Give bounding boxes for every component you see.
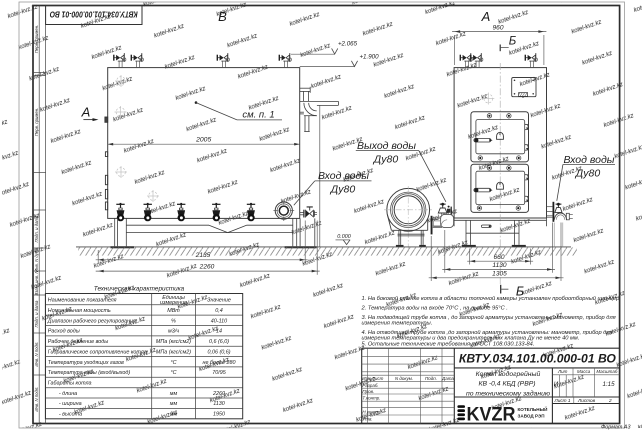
svg-text:Номинальная мощность: Номинальная мощность: [48, 308, 111, 314]
svg-text:Ду80: Ду80: [575, 167, 601, 179]
svg-text:мм: мм: [170, 401, 178, 407]
svg-text:1305: 1305: [492, 270, 507, 277]
svg-text:Температура воды (вход/выход): Температура воды (вход/выход): [48, 370, 131, 376]
svg-text:+2.065: +2.065: [338, 41, 358, 48]
svg-text:2260: 2260: [199, 264, 215, 271]
svg-text:Разраб.: Разраб.: [362, 383, 378, 388]
svg-text:Пров.: Пров.: [362, 389, 374, 394]
svg-text:Рабочее давление воды: Рабочее давление воды: [48, 339, 108, 345]
svg-text:Габариты котла: Габариты котла: [48, 381, 92, 387]
svg-text:Подп.: Подп.: [425, 376, 437, 381]
svg-text:Подп. и дата: Подп. и дата: [34, 300, 39, 328]
svg-text:Инв. N подл.: Инв. N подл.: [34, 341, 39, 366]
svg-text:N докум.: N докум.: [395, 376, 413, 381]
svg-text:И: И: [554, 381, 559, 388]
svg-text:Взам. инв. N: Взам. инв. N: [34, 270, 39, 296]
svg-text:мм: мм: [170, 412, 178, 418]
svg-text:КОТЕЛЬНЫЙ: КОТЕЛЬНЫЙ: [518, 405, 548, 412]
svg-text:Техническая характеристика: Техническая характеристика: [94, 286, 185, 293]
svg-text:2. Температура воды на входе: 2. Температура воды на входе 70°С , на в…: [361, 306, 508, 312]
svg-text:5. Остальные технические треб: 5. Остальные технические требования по О…: [362, 342, 535, 348]
svg-text:не более 280: не более 280: [203, 360, 236, 366]
svg-text:Инв. N подл.: Инв. N подл.: [34, 386, 39, 411]
svg-text:МВт: МВт: [167, 308, 180, 314]
svg-text:Подп. и дата: Подп. и дата: [34, 215, 39, 243]
svg-text:1. На боковой стенке котла в: 1. На боковой стенке котла в области топ…: [362, 295, 620, 302]
svg-text:Диапазон рабочего регулировани: Диапазон рабочего регулирования: [47, 318, 136, 324]
svg-text:Листов: Листов: [577, 398, 596, 403]
svg-text:1950: 1950: [213, 412, 225, 418]
svg-text:0,6 (6,0): 0,6 (6,0): [209, 339, 229, 345]
svg-text:Перв. примен.: Перв. примен.: [34, 108, 39, 137]
svg-text:Лит: Лит: [557, 369, 568, 374]
svg-text:см. п. 1: см. п. 1: [242, 109, 274, 120]
svg-text:Гидравлическое сопротивление к: Гидравлическое сопротивление котла: [48, 349, 147, 355]
svg-text:ЗАВОД РЭП: ЗАВОД РЭП: [518, 413, 545, 418]
svg-text:70/95: 70/95: [212, 370, 226, 376]
svg-text:Котел водогрейный: Котел водогрейный: [476, 370, 541, 378]
svg-text:960: 960: [492, 25, 503, 32]
svg-text:по техническому заданию: по техническому заданию: [466, 389, 550, 397]
svg-text:2260: 2260: [212, 391, 225, 397]
svg-text:+1.900: +1.900: [359, 54, 379, 61]
svg-text:2005: 2005: [195, 137, 211, 144]
svg-text:0,06 (0,6): 0,06 (0,6): [207, 349, 230, 355]
svg-text:Наименование показателя: Наименование показателя: [48, 297, 117, 303]
svg-text:2: 2: [608, 398, 612, 403]
svg-text:В: В: [218, 9, 227, 24]
svg-text:1:15: 1:15: [602, 381, 615, 388]
svg-text:мм: мм: [170, 391, 178, 397]
svg-text:Т.контр.: Т.контр.: [362, 395, 380, 400]
svg-text:0.000: 0.000: [337, 234, 351, 240]
svg-text:Значение: Значение: [207, 297, 231, 303]
svg-text:Температура уходящих газов: Температура уходящих газов: [48, 360, 124, 366]
svg-text:измерения: измерения: [160, 300, 187, 306]
svg-text:КВТУ.034.101.00.000-01 ВО: КВТУ.034.101.00.000-01 ВО: [459, 353, 616, 365]
svg-text:МПа (кгс/см2): МПа (кгс/см2): [156, 349, 191, 355]
svg-text:°С: °С: [170, 360, 176, 366]
svg-text:Инв. N дубл.: Инв. N дубл.: [34, 247, 39, 272]
svg-text:Б: Б: [509, 36, 517, 48]
svg-text:Ду80: Ду80: [330, 184, 356, 196]
svg-text:40-110: 40-110: [211, 318, 227, 324]
svg-text:14: 14: [216, 329, 222, 335]
svg-text:Перв. примен.: Перв. примен.: [34, 25, 39, 54]
svg-text:Масса: Масса: [577, 369, 591, 374]
svg-text:Вход воды: Вход воды: [318, 170, 369, 182]
svg-text:Масштаб: Масштаб: [596, 369, 617, 374]
svg-text:KVZR: KVZR: [467, 405, 516, 426]
svg-text:А: А: [81, 104, 91, 119]
svg-text:измерения температуры.: измерения температуры.: [362, 321, 433, 327]
svg-text:Утв.: Утв.: [362, 416, 372, 421]
svg-text:1130: 1130: [213, 401, 225, 407]
svg-text:м3/ч: м3/ч: [168, 329, 179, 335]
svg-text:- высота: - высота: [59, 412, 82, 418]
svg-text:0,4: 0,4: [215, 308, 223, 314]
svg-text:Дата: Дата: [441, 376, 454, 381]
svg-text:Н.контр.: Н.контр.: [362, 409, 381, 414]
svg-text:КВТУ.034.101.00.000-01 ВО: КВТУ.034.101.00.000-01 ВО: [49, 10, 138, 19]
svg-text:МПа (кгс/см2): МПа (кгс/см2): [156, 339, 191, 345]
svg-text:°С: °С: [170, 370, 176, 376]
svg-text:- длина: - длина: [59, 391, 77, 397]
svg-text:Ду80: Ду80: [373, 153, 399, 165]
svg-text:КВ -0,4 КБД (РВР): КВ -0,4 КБД (РВР): [478, 381, 535, 388]
svg-text:Формат А3: Формат А3: [601, 424, 631, 430]
svg-text:Расход воды: Расход воды: [48, 329, 80, 335]
svg-text:%: %: [171, 318, 176, 324]
svg-text:1130: 1130: [492, 262, 507, 269]
svg-text:- ширина: - ширина: [59, 401, 82, 407]
svg-text:Лист 1: Лист 1: [554, 398, 571, 403]
svg-text:А: А: [481, 9, 491, 24]
svg-text:Изм.Лист: Изм.Лист: [362, 376, 383, 381]
